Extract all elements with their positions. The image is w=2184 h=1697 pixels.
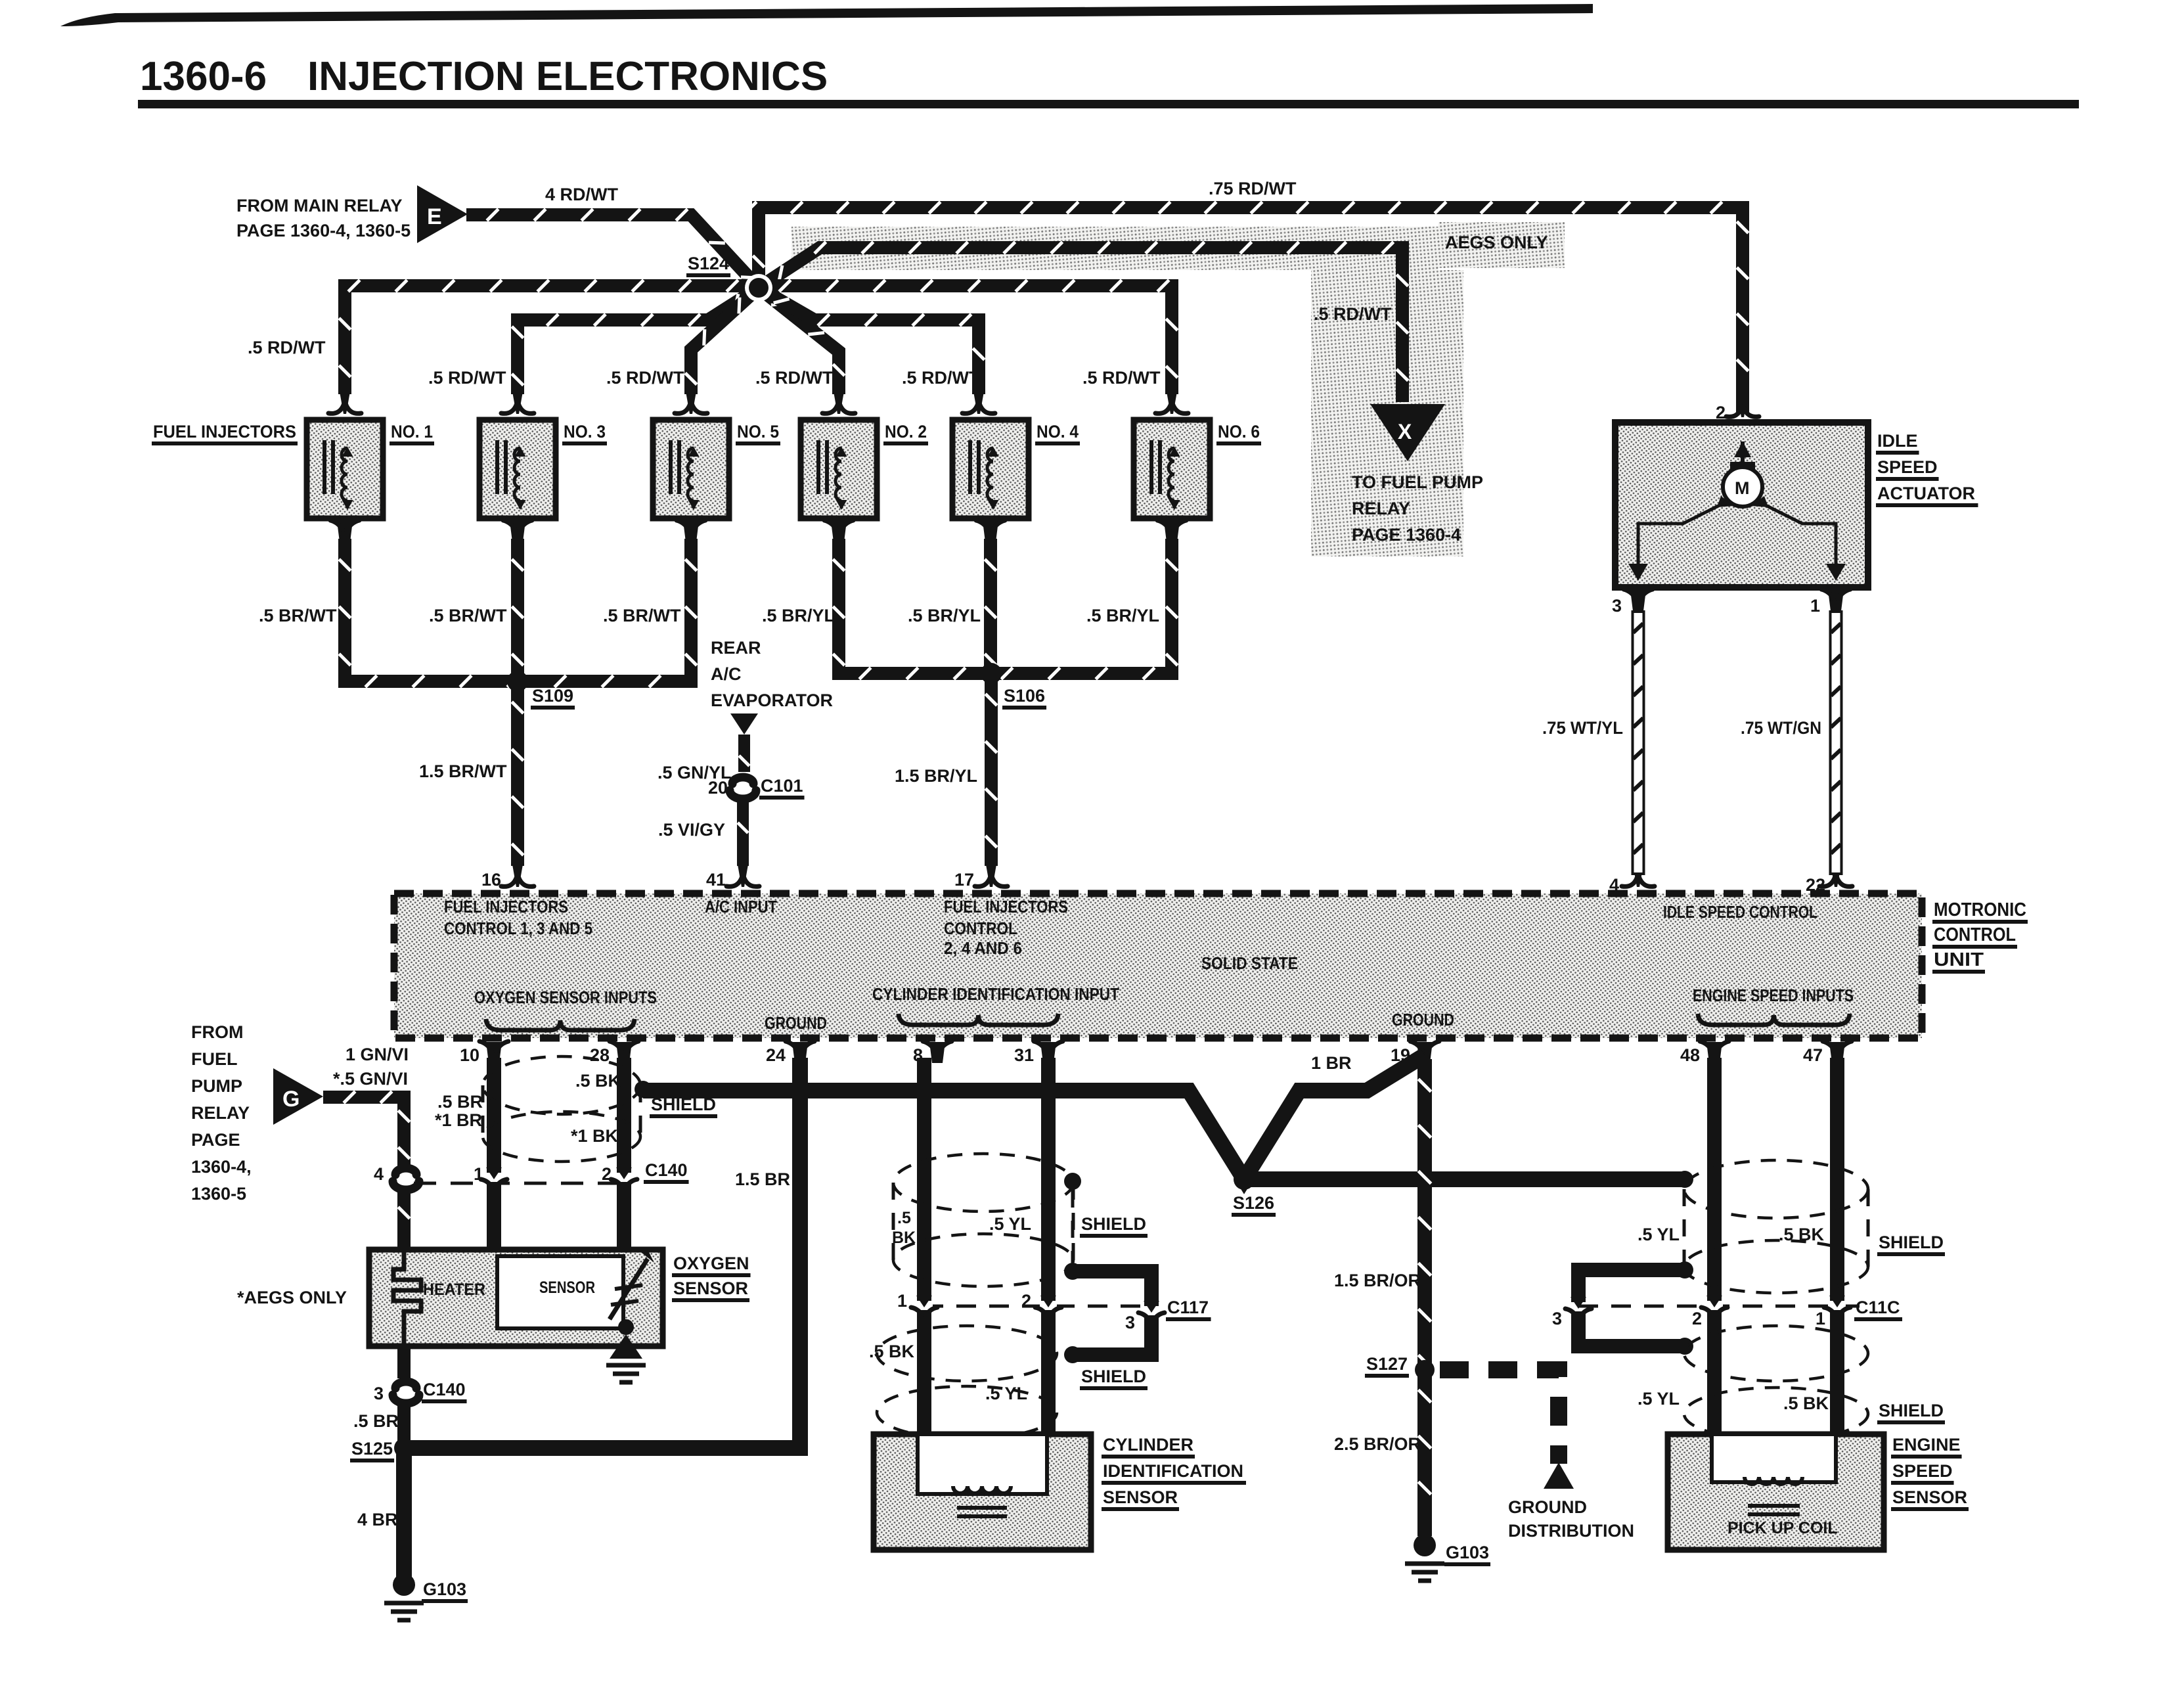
svg-text:OXYGEN: OXYGEN	[673, 1254, 749, 1273]
svg-text:.5 BR/YL: .5 BR/YL	[908, 606, 981, 625]
svg-text:.75 RD/WT: .75 RD/WT	[1209, 179, 1297, 198]
svg-text:31: 31	[1014, 1045, 1034, 1065]
svg-text:1.5 BR/YL: 1.5 BR/YL	[895, 766, 977, 786]
svg-text:CYLINDER IDENTIFICATION INPUT: CYLINDER IDENTIFICATION INPUT	[872, 984, 1119, 1004]
svg-text:.5 YL: .5 YL	[989, 1214, 1031, 1234]
svg-text:*1 BR: *1 BR	[435, 1110, 482, 1130]
svg-text:BK: BK	[892, 1229, 916, 1247]
svg-text:1 BR: 1 BR	[1311, 1053, 1352, 1073]
svg-text:FROM MAIN RELAY: FROM MAIN RELAY	[236, 196, 403, 215]
svg-text:.5 BR: .5 BR	[437, 1092, 483, 1112]
svg-text:AEGS ONLY: AEGS ONLY	[1445, 233, 1548, 252]
svg-text:S125: S125	[351, 1439, 393, 1459]
svg-text:.5 RD/WT: .5 RD/WT	[606, 368, 684, 388]
svg-text:3: 3	[374, 1384, 384, 1403]
svg-text:.5 BK: .5 BK	[1779, 1225, 1825, 1244]
svg-text:28: 28	[590, 1045, 610, 1065]
svg-text:CYLINDER: CYLINDER	[1103, 1435, 1193, 1455]
svg-text:1360-4,: 1360-4,	[191, 1157, 252, 1177]
svg-text:.5 RD/WT: .5 RD/WT	[902, 368, 980, 388]
svg-text:IDLE: IDLE	[1877, 431, 1918, 451]
svg-text:EVAPORATOR: EVAPORATOR	[711, 690, 833, 710]
svg-text:SENSOR: SENSOR	[539, 1278, 595, 1297]
svg-text:.5 YL: .5 YL	[1638, 1389, 1680, 1409]
svg-text:.5 RD/WT: .5 RD/WT	[248, 338, 326, 357]
svg-text:2: 2	[1716, 403, 1726, 422]
svg-text:FROM: FROM	[191, 1022, 243, 1042]
svg-text:.5 RD/WT: .5 RD/WT	[1082, 368, 1161, 388]
svg-text:A/C: A/C	[711, 664, 742, 684]
svg-text:.5 BR/YL: .5 BR/YL	[762, 606, 835, 625]
svg-text:2: 2	[1692, 1309, 1702, 1328]
svg-text:SPEED: SPEED	[1892, 1461, 1953, 1481]
svg-text:SENSOR: SENSOR	[673, 1278, 748, 1298]
svg-text:X: X	[1398, 420, 1412, 443]
svg-text:MOTRONIC: MOTRONIC	[1934, 899, 2026, 920]
svg-text:2: 2	[1021, 1291, 1031, 1311]
svg-text:41: 41	[706, 870, 726, 890]
svg-text:IDENTIFICATION: IDENTIFICATION	[1103, 1461, 1243, 1481]
svg-text:SPEED: SPEED	[1877, 457, 1938, 477]
svg-text:.5 BR/WT: .5 BR/WT	[429, 606, 507, 625]
svg-text:DISTRIBUTION: DISTRIBUTION	[1508, 1521, 1634, 1541]
svg-text:NO. 5: NO. 5	[737, 422, 779, 441]
svg-text:.75 WT/YL: .75 WT/YL	[1542, 718, 1623, 738]
svg-text:NO. 6: NO. 6	[1218, 422, 1260, 441]
svg-text:FUEL INJECTORS: FUEL INJECTORS	[153, 422, 296, 441]
svg-text:.5 RD/WT: .5 RD/WT	[428, 368, 506, 388]
svg-text:10: 10	[460, 1045, 479, 1065]
svg-text:SHIELD: SHIELD	[1081, 1214, 1146, 1234]
svg-text:2, 4 AND 6: 2, 4 AND 6	[944, 938, 1022, 958]
svg-text:SHIELD: SHIELD	[1081, 1367, 1146, 1386]
svg-text:.5: .5	[897, 1209, 911, 1227]
svg-text:FUEL: FUEL	[191, 1049, 238, 1069]
svg-text:S109: S109	[532, 686, 573, 706]
svg-text:C101: C101	[761, 776, 803, 796]
svg-text:4 RD/WT: 4 RD/WT	[545, 185, 619, 204]
svg-text:.5 YL: .5 YL	[985, 1384, 1027, 1403]
svg-text:OXYGEN SENSOR INPUTS: OXYGEN SENSOR INPUTS	[474, 987, 657, 1007]
svg-text:GROUND: GROUND	[765, 1013, 827, 1033]
svg-text:HEATER: HEATER	[423, 1280, 485, 1299]
svg-text:IDLE SPEED CONTROL: IDLE SPEED CONTROL	[1663, 902, 1817, 922]
svg-text:PICK UP COIL: PICK UP COIL	[1727, 1519, 1838, 1537]
svg-text:RELAY: RELAY	[191, 1103, 250, 1123]
svg-text:*AEGS ONLY: *AEGS ONLY	[237, 1288, 347, 1307]
svg-text:2: 2	[602, 1164, 612, 1184]
svg-text:M: M	[1735, 478, 1750, 498]
svg-text:4: 4	[374, 1164, 384, 1184]
svg-text:1: 1	[474, 1164, 483, 1184]
svg-text:G103: G103	[1446, 1543, 1489, 1562]
svg-text:NO. 4: NO. 4	[1036, 422, 1079, 441]
svg-text:20: 20	[708, 778, 728, 798]
svg-text:PAGE 1360-4, 1360-5: PAGE 1360-4, 1360-5	[236, 221, 411, 240]
svg-text:16: 16	[481, 870, 501, 890]
svg-text:.5 BK: .5 BK	[1783, 1393, 1829, 1413]
svg-text:3: 3	[1552, 1309, 1562, 1328]
svg-text:C11C: C11C	[1856, 1298, 1900, 1317]
svg-text:S124: S124	[688, 254, 729, 273]
svg-text:.5 RD/WT: .5 RD/WT	[1314, 304, 1392, 324]
svg-text:1360-6: 1360-6	[140, 54, 267, 99]
svg-text:.5 BK: .5 BK	[575, 1071, 621, 1091]
svg-text:NO. 1: NO. 1	[391, 422, 433, 441]
svg-text:.5 RD/WT: .5 RD/WT	[755, 368, 834, 388]
svg-text:A/C INPUT: A/C INPUT	[705, 897, 777, 916]
svg-text:NO. 2: NO. 2	[885, 422, 927, 441]
svg-text:*.5 GN/VI: *.5 GN/VI	[333, 1069, 408, 1089]
svg-text:G103: G103	[423, 1579, 466, 1599]
svg-text:C140: C140	[645, 1160, 688, 1180]
svg-text:REAR: REAR	[711, 638, 761, 658]
svg-text:17: 17	[954, 870, 974, 890]
svg-text:.5 YL: .5 YL	[1638, 1225, 1680, 1244]
svg-text:PAGE: PAGE	[191, 1130, 240, 1150]
svg-text:1: 1	[1810, 596, 1820, 616]
svg-text:1: 1	[897, 1291, 907, 1311]
svg-text:.5 VI/GY: .5 VI/GY	[658, 820, 725, 840]
svg-text:1.5 BR: 1.5 BR	[735, 1169, 790, 1189]
svg-text:1.5 BR/WT: 1.5 BR/WT	[419, 761, 507, 781]
svg-text:INJECTION ELECTRONICS: INJECTION ELECTRONICS	[307, 54, 828, 99]
svg-text:C140: C140	[423, 1380, 466, 1399]
svg-text:GROUND: GROUND	[1392, 1010, 1454, 1030]
svg-text:1 GN/VI: 1 GN/VI	[345, 1045, 409, 1064]
svg-text:2.5 BR/OR: 2.5 BR/OR	[1334, 1434, 1421, 1454]
svg-text:S127: S127	[1366, 1354, 1408, 1374]
svg-text:RELAY: RELAY	[1352, 499, 1410, 518]
svg-text:CONTROL: CONTROL	[944, 918, 1017, 938]
svg-text:PUMP: PUMP	[191, 1076, 242, 1096]
svg-text:22: 22	[1806, 875, 1825, 895]
svg-text:E: E	[427, 204, 442, 229]
svg-text:C117: C117	[1167, 1298, 1209, 1317]
svg-text:SOLID STATE: SOLID STATE	[1201, 953, 1298, 973]
svg-text:.5 BR/WT: .5 BR/WT	[259, 606, 337, 625]
svg-text:GROUND: GROUND	[1508, 1497, 1587, 1517]
svg-text:1: 1	[1816, 1309, 1825, 1328]
svg-text:ENGINE SPEED INPUTS: ENGINE SPEED INPUTS	[1693, 985, 1854, 1005]
svg-text:.5 BR/WT: .5 BR/WT	[603, 606, 681, 625]
svg-text:.75 WT/GN: .75 WT/GN	[1741, 718, 1821, 738]
svg-text:UNIT: UNIT	[1934, 949, 1984, 970]
svg-text:TO FUEL PUMP: TO FUEL PUMP	[1352, 472, 1483, 492]
svg-text:3: 3	[1125, 1313, 1135, 1332]
svg-text:48: 48	[1680, 1045, 1700, 1065]
svg-text:.5 BK: .5 BK	[869, 1342, 915, 1361]
svg-text:FUEL INJECTORS: FUEL INJECTORS	[444, 897, 568, 916]
svg-text:SHIELD: SHIELD	[1879, 1233, 1944, 1252]
svg-text:SHIELD: SHIELD	[1879, 1401, 1944, 1420]
svg-text:24: 24	[766, 1045, 786, 1065]
svg-text:ENGINE: ENGINE	[1892, 1435, 1961, 1455]
svg-text:PAGE 1360-4: PAGE 1360-4	[1352, 525, 1461, 545]
svg-text:*1 BK: *1 BK	[571, 1126, 619, 1146]
svg-text:.5 BR/YL: .5 BR/YL	[1086, 606, 1159, 625]
svg-text:4 BR: 4 BR	[357, 1510, 398, 1529]
svg-text:3: 3	[1612, 596, 1622, 616]
svg-text:47: 47	[1803, 1045, 1823, 1065]
svg-text:ACTUATOR: ACTUATOR	[1877, 484, 1975, 503]
svg-text:CONTROL: CONTROL	[1934, 924, 2016, 945]
svg-text:CONTROL 1, 3 AND 5: CONTROL 1, 3 AND 5	[444, 918, 592, 938]
svg-text:FUEL INJECTORS: FUEL INJECTORS	[944, 897, 1068, 916]
svg-text:NO. 3: NO. 3	[564, 422, 606, 441]
svg-text:.5 BR: .5 BR	[353, 1411, 399, 1431]
svg-text:1360-5: 1360-5	[191, 1184, 246, 1204]
svg-text:S126: S126	[1233, 1193, 1274, 1213]
svg-text:SENSOR: SENSOR	[1892, 1487, 1967, 1507]
svg-text:G: G	[282, 1087, 300, 1112]
svg-text:4: 4	[1609, 875, 1619, 895]
svg-text:SENSOR: SENSOR	[1103, 1487, 1178, 1507]
svg-text:S106: S106	[1004, 686, 1045, 706]
svg-text:1.5 BR/OR: 1.5 BR/OR	[1334, 1271, 1421, 1290]
